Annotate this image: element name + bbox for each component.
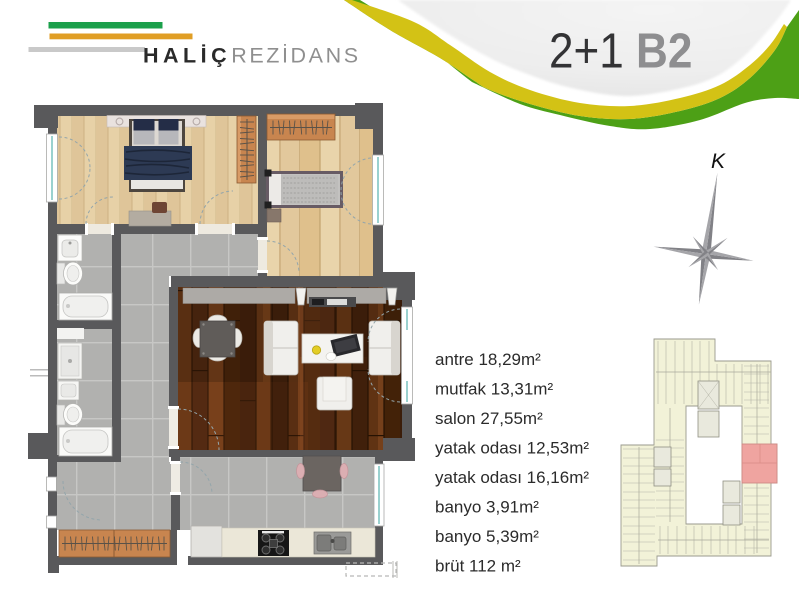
svg-text:salon 27,55m²: salon 27,55m² (435, 409, 543, 428)
svg-text:brüt 112 m²: brüt 112 m² (435, 557, 521, 576)
svg-text:yatak odası 16,16m²: yatak odası 16,16m² (435, 468, 589, 487)
svg-text:banyo 5,39m²: banyo 5,39m² (435, 527, 539, 546)
svg-text:yatak odası 12,53m²: yatak odası 12,53m² (435, 439, 589, 458)
svg-text:antre 18,29m²: antre 18,29m² (435, 350, 541, 369)
svg-text:mutfak 13,31m²: mutfak 13,31m² (435, 380, 553, 399)
svg-text:K: K (711, 150, 726, 173)
svg-text:HALİÇREZİDANS: HALİÇREZİDANS (143, 44, 361, 68)
svg-text:banyo 3,91m²: banyo 3,91m² (435, 498, 539, 517)
svg-text:2+1 B2: 2+1 B2 (549, 23, 692, 78)
